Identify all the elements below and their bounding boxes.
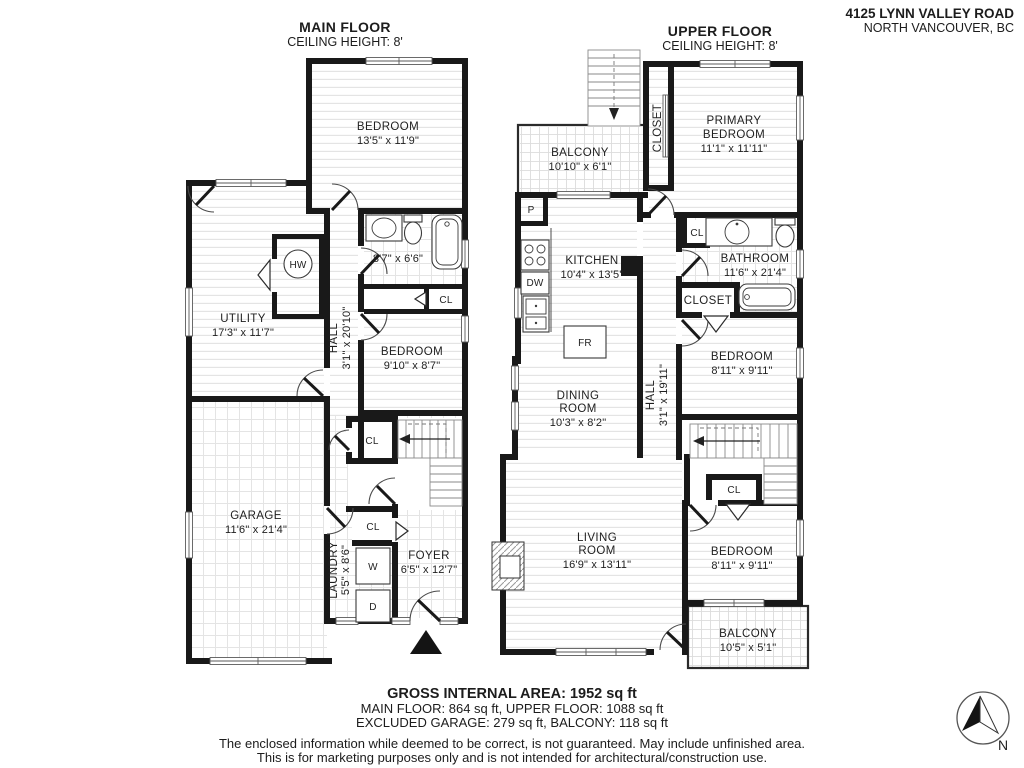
room-dims-main-bedroom-mid: 9'10" x 8'7": [384, 360, 441, 372]
closet-label-primary: CLOSET: [652, 104, 664, 152]
room-dims-kitchen: 10'4" x 13'5": [561, 269, 624, 281]
upper-floor-title: UPPER FLOOR: [620, 24, 820, 39]
room-dims-laundry: 5'5" x 8'6": [340, 545, 352, 595]
upper-floor-ceiling: CEILING HEIGHT: 8': [620, 39, 820, 54]
main-floor-header: MAIN FLOOR CEILING HEIGHT: 8': [245, 20, 445, 50]
pantry-label: P: [528, 205, 535, 216]
vanity-upper: [706, 218, 772, 246]
room-dims-utility: 17'3" x 11'7": [212, 327, 274, 339]
room-label-hall-upper: HALL: [645, 380, 657, 411]
floorplan-drawing: BEDROOM 13'5" x 11'9" UTILITY 17'3" x 11…: [0, 0, 1024, 768]
fridge-label: FR: [578, 338, 592, 349]
room-dims-living: 16'9" x 13'11": [563, 559, 631, 571]
room-label-foyer: FOYER: [408, 550, 450, 562]
gross-area-text: GROSS INTERNAL AREA: 1952 sq ft: [0, 687, 1024, 702]
room-dims-garage: 11'6" x 21'4": [225, 524, 287, 536]
closet-label-bedroom: CLOSET: [684, 295, 732, 307]
room-label-dining-1: DINING: [557, 390, 600, 402]
room-dims-hall-upper: 3'1" x 19'11": [658, 364, 670, 426]
footer-block: GROSS INTERNAL AREA: 1952 sq ft MAIN FLO…: [0, 687, 1024, 765]
address-block: 4125 LYNN VALLEY ROAD NORTH VANCOUVER, B…: [845, 6, 1014, 36]
room-label-balcony-upper: BALCONY: [551, 147, 609, 159]
room-dims-balcony-upper: 10'10" x 6'1": [549, 161, 612, 173]
room-dims-main-bath: 8'7" x 6'6": [373, 253, 423, 265]
disclaimer-text: The enclosed information while deemed to…: [0, 737, 1024, 765]
main-floor-ceiling: CEILING HEIGHT: 8': [245, 35, 445, 50]
room-dims-main-bedroom-top: 13'5" x 11'9": [357, 135, 419, 147]
entry-arrow-marker: [410, 630, 442, 654]
room-dims-bedroom-upper-bot: 8'11" x 9'11": [711, 560, 772, 572]
toilet-main-icon: [405, 222, 422, 244]
room-dims-balcony-lower: 10'5" x 5'1": [720, 642, 777, 654]
hw-label: HW: [289, 260, 306, 271]
room-label-living-2: ROOM: [578, 545, 615, 557]
room-label-living-1: LIVING: [577, 532, 617, 544]
room-label-laundry: LAUNDRY: [328, 541, 340, 599]
toilet-tank-upper: [775, 218, 795, 225]
room-label-bedroom-upper-bot: BEDROOM: [711, 546, 773, 558]
cl-label-laundry: CL: [366, 522, 379, 533]
washer-label: W: [368, 562, 378, 573]
address-line2: NORTH VANCOUVER, BC: [845, 21, 1014, 36]
room-dims-hall-main: 3'1" x 20'10": [341, 307, 353, 370]
room-label-garage: GARAGE: [230, 510, 282, 522]
upper-floor-plan: BALCONY 10'10" x 6'1" CLOSET PRIMARY BED…: [492, 50, 808, 668]
dishwasher-label: DW: [526, 278, 543, 289]
room-label-hall-main: HALL: [328, 323, 340, 354]
toilet-tank-main: [404, 215, 422, 222]
room-label-dining-2: ROOM: [559, 403, 596, 415]
vanity-main: [366, 215, 402, 241]
room-label-kitchen: KITCHEN: [565, 255, 618, 267]
cl-label-stairs: CL: [365, 436, 378, 447]
room-label-primary-1: PRIMARY: [707, 115, 762, 127]
main-floor-plan: BEDROOM 13'5" x 11'9" UTILITY 17'3" x 11…: [186, 58, 469, 665]
room-dims-dining: 10'3" x 8'2": [550, 417, 607, 429]
room-dims-bathroom-upper: 11'6" x 21'4": [724, 267, 786, 279]
room-dims-primary: 11'1" x 11'11": [701, 143, 768, 155]
cl-label-upper-stairs: CL: [727, 485, 740, 496]
cl-label-upper-bath: CL: [690, 228, 703, 239]
room-dims-bedroom-upper-mid: 8'11" x 9'11": [711, 365, 772, 377]
room-label-utility: UTILITY: [220, 313, 266, 325]
stove-icon: [521, 240, 549, 270]
room-label-bedroom-upper-mid: BEDROOM: [711, 351, 773, 363]
excluded-areas-text: EXCLUDED GARAGE: 279 sq ft, BALCONY: 118…: [0, 716, 1024, 731]
cl-label-bath: CL: [439, 295, 452, 306]
floorplan-page: MAIN FLOOR CEILING HEIGHT: 8' UPPER FLOO…: [0, 0, 1024, 768]
room-label-balcony-lower: BALCONY: [719, 628, 777, 640]
floor-areas-text: MAIN FLOOR: 864 sq ft, UPPER FLOOR: 1088…: [0, 702, 1024, 717]
upper-floor-header: UPPER FLOOR CEILING HEIGHT: 8': [620, 24, 820, 54]
room-label-main-bedroom-top: BEDROOM: [357, 121, 419, 133]
disclaimer-line1: The enclosed information while deemed to…: [0, 737, 1024, 751]
room-label-bathroom-upper: BATHROOM: [721, 253, 790, 265]
address-line1: 4125 LYNN VALLEY ROAD: [845, 6, 1014, 21]
room-dims-foyer: 6'5" x 12'7": [401, 564, 458, 576]
dryer-label: D: [369, 602, 376, 613]
main-floor-title: MAIN FLOOR: [245, 20, 445, 35]
room-label-main-bedroom-mid: BEDROOM: [381, 346, 443, 358]
disclaimer-line2: This is for marketing purposes only and …: [0, 751, 1024, 765]
room-label-primary-2: BEDROOM: [703, 129, 765, 141]
toilet-upper-icon: [776, 225, 794, 247]
